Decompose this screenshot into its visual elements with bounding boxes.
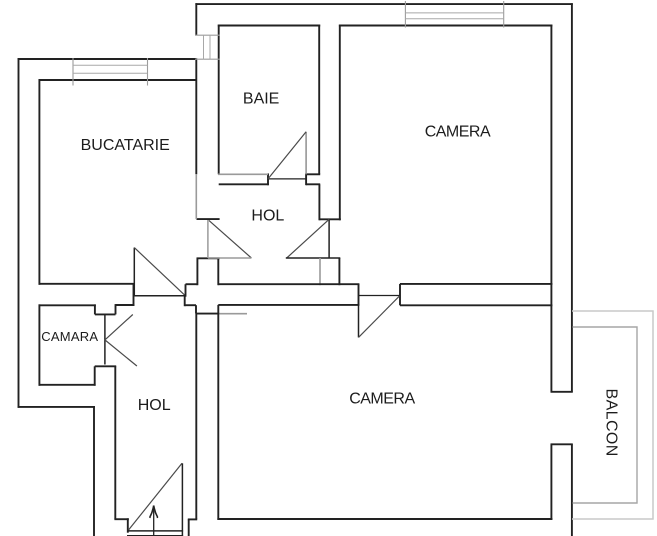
svg-text:CAMARA: CAMARA	[41, 329, 98, 344]
svg-text:HOL: HOL	[138, 397, 171, 414]
svg-text:BALCON: BALCON	[603, 389, 620, 457]
svg-text:CAMERA: CAMERA	[425, 123, 491, 140]
svg-text:CAMERA: CAMERA	[349, 390, 415, 407]
svg-text:BAIE: BAIE	[243, 90, 279, 107]
svg-text:BUCATARIE: BUCATARIE	[81, 137, 170, 154]
svg-text:HOL: HOL	[251, 207, 284, 224]
